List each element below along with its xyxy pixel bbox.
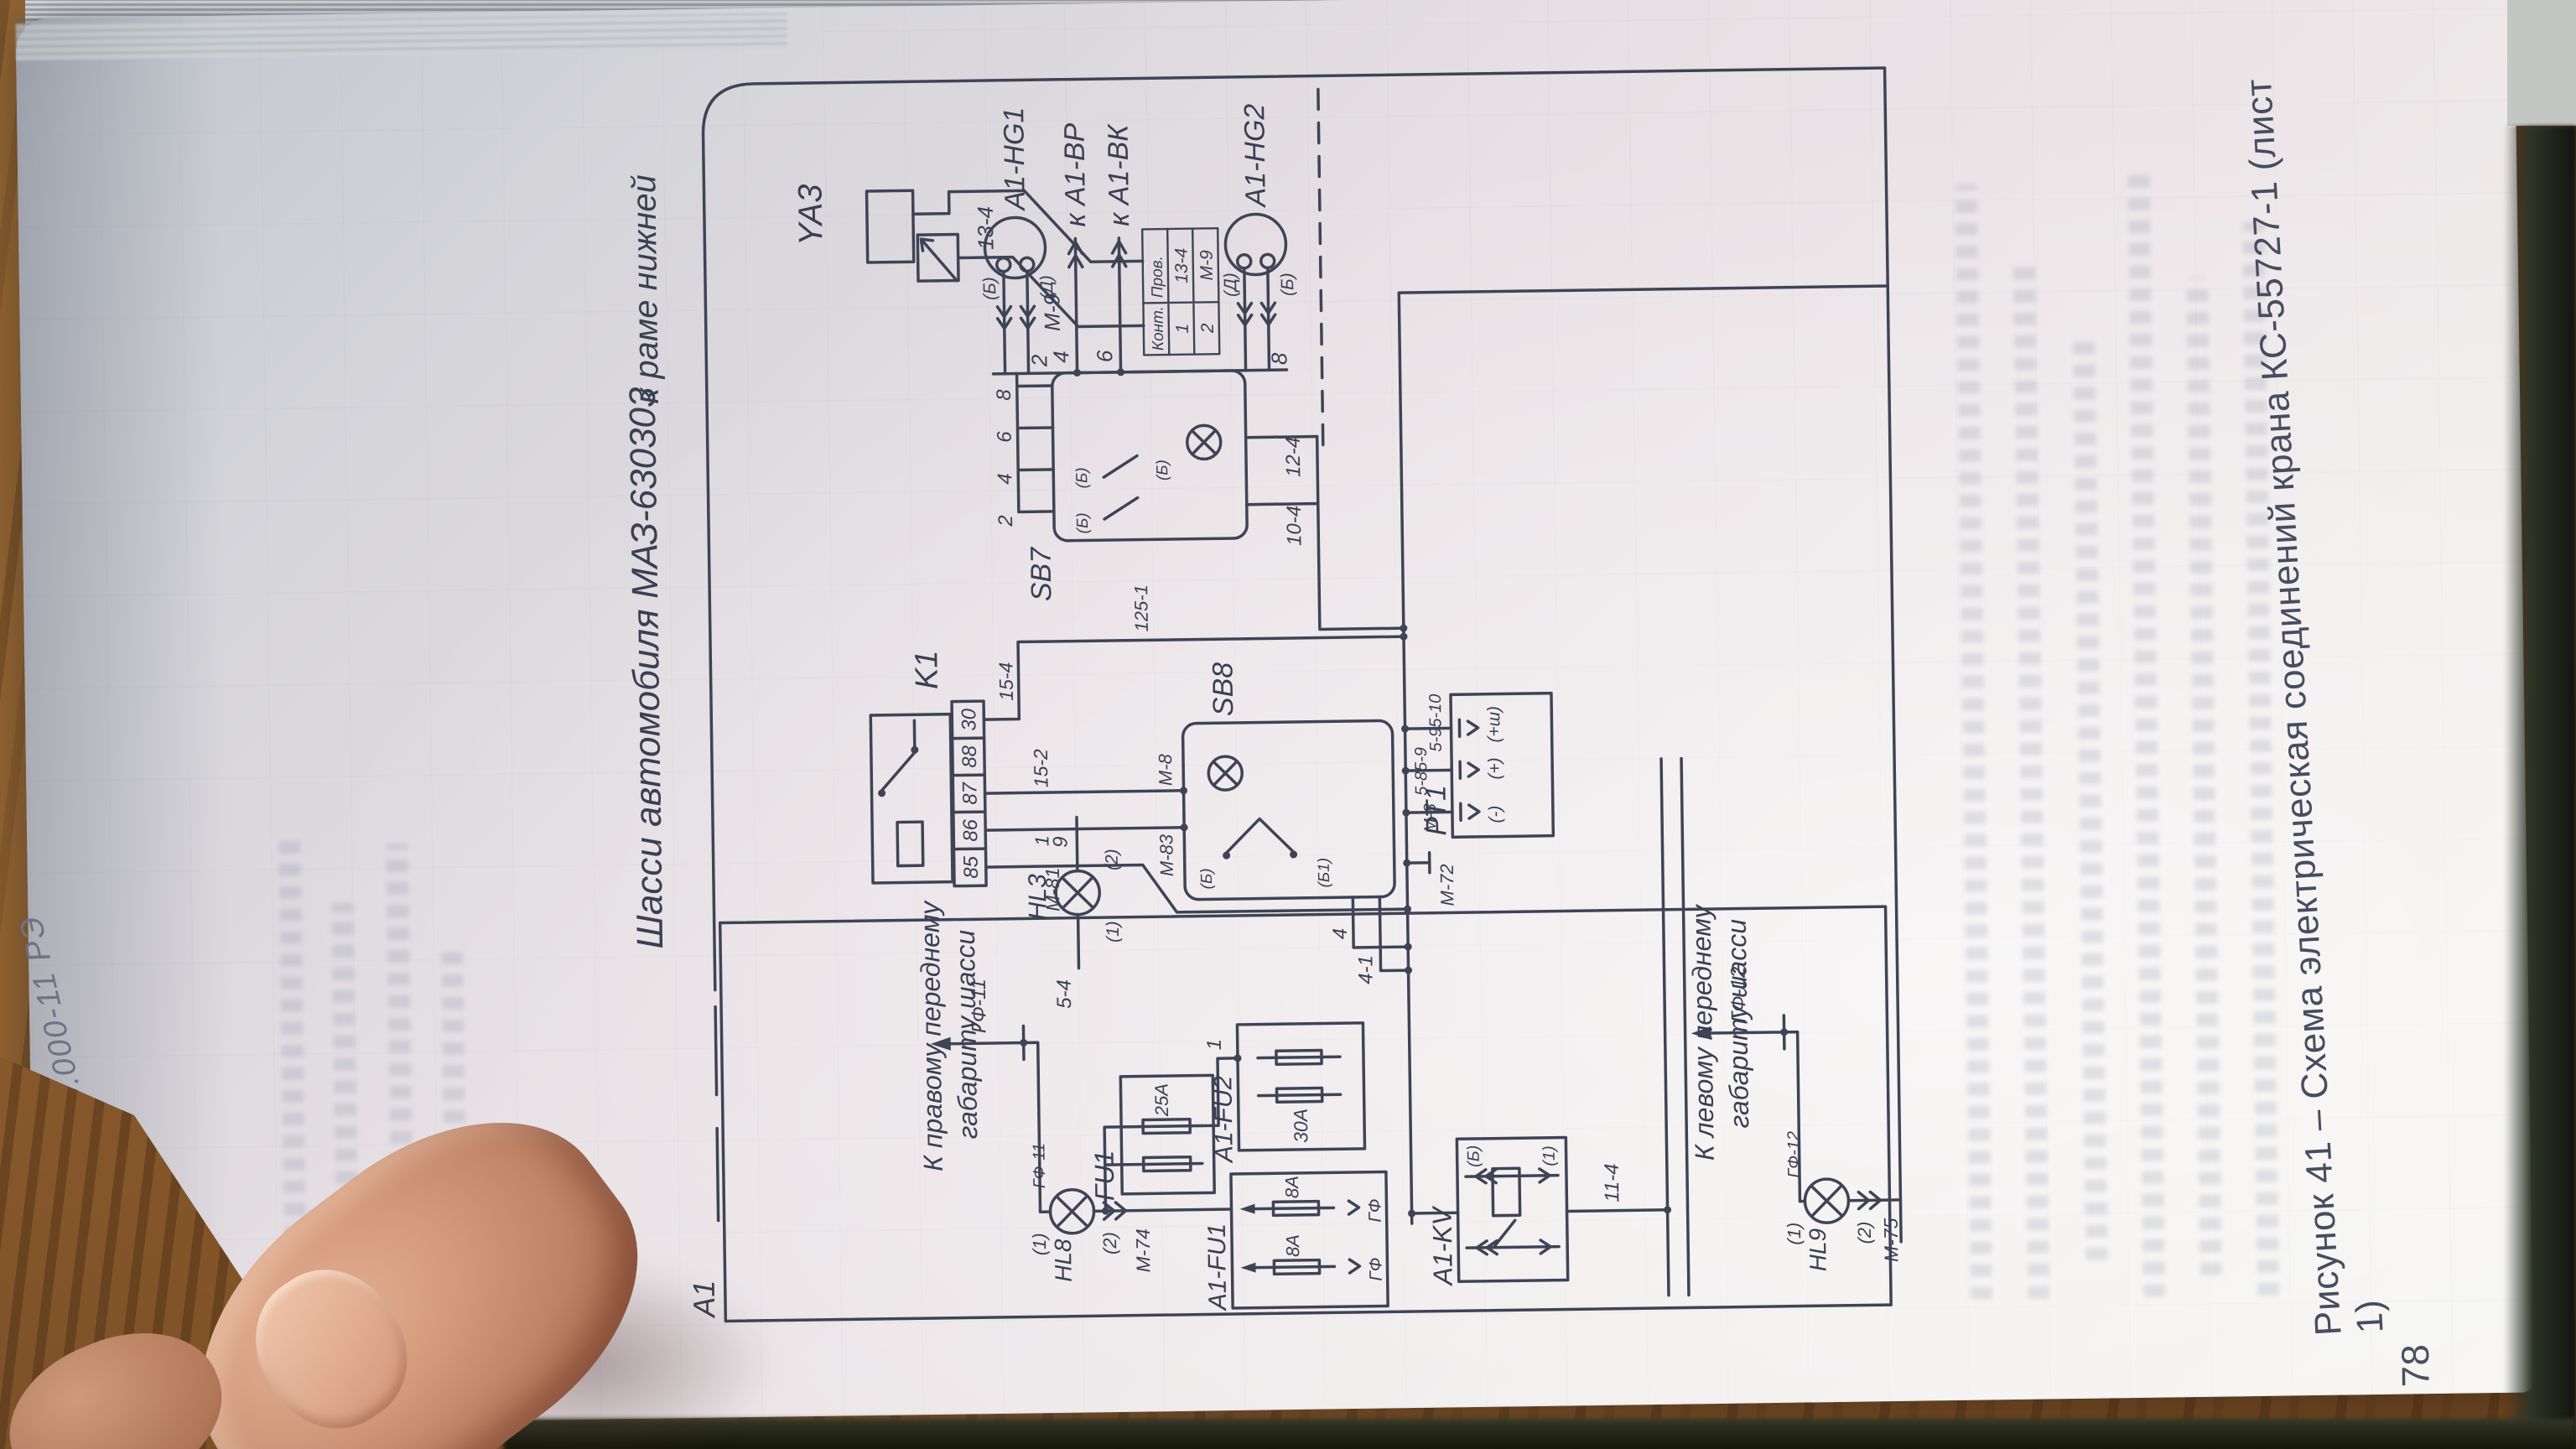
thumb-nail [229,1244,434,1449]
table-cell: 13-4 [1172,248,1192,283]
ghost-text-bleed [2127,165,2165,1297]
a1-hg2-label: А1-HG2 [1239,103,1272,208]
hg2-pin-b: (Б) [1278,273,1297,296]
hl9-lamp-cluster: К левому переднему габариту шасси ГФ-12 … [1685,901,1902,1273]
bp-wire-4: 4 [1048,351,1073,363]
hl9-wire-gf12: ГФ-12 [1784,1131,1804,1178]
hl8-label: HL8 [1050,1239,1077,1282]
hl3-terminal-1: (1) [1104,921,1123,943]
hl3-wire-5-4: 5-4 [1053,979,1076,1009]
page-number-label: 78 [2392,1344,2438,1388]
rt1-terminal-plus-sh: (+ш) [1484,706,1504,743]
hl8-note-line2: габариту шасси [950,929,983,1139]
ya3-label: YA3 [792,184,829,246]
a1-fu2-fuse-block: А1-FU2 30А 1 [1202,1023,1364,1165]
k1-terminal-87: 87 [958,781,981,805]
hl8-arrow-gf11: ГФ-11 [968,979,991,1033]
a1-fu2-wire-1: 1 [1203,1039,1226,1051]
kv-terminal-b: (Б) [1464,1145,1483,1168]
table-header-prov: Пров. [1149,256,1167,298]
a1-fu1-wire-gf: ГФ [1366,1257,1385,1280]
table-cell: 2 [1198,323,1218,334]
photo-of-manual-page: КС-55727-1.00.00.000-11 РЭ Шасси автомоб… [0,0,2576,1449]
a1-fu1-rating-8a: 8А [1281,1176,1302,1198]
k1-label: K1 [909,650,945,689]
sb7-wire-12-4: 12-4 [1282,437,1306,477]
fu1-label: FU1 [1089,1150,1120,1201]
sb8-switch: SB8 (Б) (Б1) М-8 М-83 4 4-1 [1153,660,1408,987]
k1-wire-15-4: 15-4 [995,662,1017,701]
hl8-terminal-2: (2) [1099,1232,1120,1254]
hl3-terminal-2: (2) [1102,849,1121,870]
a1-fu2-label: А1-FU2 [1209,1075,1238,1164]
sb7-wire-4: 4 [994,473,1016,485]
sb7-terminal-b: (Б) [1154,460,1171,480]
table-header-kont: Конт. [1149,306,1167,351]
hl8-terminal-1: (1) [1029,1233,1050,1255]
k1-terminal-85: 85 [960,855,983,879]
page-bottom-shadow [503,1419,2576,1449]
hl9-arrow-gf12: ГФ-12 [1727,967,1751,1023]
ghost-text-bleed [2186,278,2222,1275]
fu1-rating-25a: 25А [1150,1083,1172,1118]
a1-fu2-rating-30a: 30А [1290,1109,1312,1143]
electrical-schematic: Шасси автомобиля МАЗ-630303 к раме нижне… [553,51,1929,1344]
k1-wire-15-2: 15-2 [1030,749,1052,788]
sb7-wire-8: 8 [993,389,1015,401]
ghost-text-bleed [2073,338,2107,1260]
sb7-wire-10-4: 10-4 [1283,506,1306,546]
sb7-switch: SB7 2 4 6 8 10-4 12-4 (Б) (Б) (Б) [993,368,1404,634]
rt1-relay: РТ1 (-) (+) (+ш) М-72 М-8 5-85-9 5-95-10 [1405,693,1555,906]
bk-wire-6: 6 [1092,350,1117,362]
page-stack-edge [16,13,788,60]
a1-fu1-rating-8a: 8А [1282,1234,1303,1257]
a1-fu1-wire-gf: ГФ [1365,1198,1384,1222]
a1-hg2-lamp: А1-HG2 (Д) (Б) 8 [1218,103,1298,371]
a1-kv-label: А1-KV [1426,1205,1457,1287]
hg1-pin-b: (Б) [980,277,1000,300]
wire-125-1: 125-1 [1130,584,1152,632]
rt1-terminal-minus: (-) [1486,805,1505,823]
sb7-terminal-b: (Б) [1073,467,1091,488]
ghost-text-bleed [1955,184,1993,1300]
hl8-note-line1: К правому переднему [914,900,948,1172]
hl9-terminal-1: (1) [1784,1223,1805,1245]
sb7-terminal-b: (Б) [1074,512,1092,533]
hl9-note-line1: К левому переднему [1685,903,1719,1161]
hl9-terminal-2: (2) [1854,1221,1875,1244]
sb8-wire-m83: М-83 [1156,834,1177,876]
hl9-note-line2: габариту шасси [1722,919,1754,1129]
hg2-wire-8: 8 [1266,352,1291,365]
to-a1-bk: к А1-ВК 6 [1088,122,1137,372]
sb7-wire-2: 2 [995,515,1017,527]
rt1-wire-5-85-9: 5-85-9 [1412,747,1431,796]
table-cell: М-9 [1197,250,1218,281]
to-a1-bp: к А1-ВР 4 [1045,122,1093,373]
table-edge-light [2507,0,2576,126]
to-a1-bk-label: к А1-ВК [1102,122,1135,226]
sb8-terminal-b1: (Б1) [1316,858,1333,888]
sb7-wire-6: 6 [994,431,1016,443]
a1-fu1-fuse-block: А1-FU1 8А 8А ГФ ГФ [1202,1171,1388,1311]
rt1-wire-m8: М-8 [1421,803,1440,833]
sb8-wire-4: 4 [1329,928,1352,940]
hg2-pin-d: (Д) [1221,273,1240,297]
sb8-terminal-b: (Б) [1198,868,1216,889]
chassis-title: Шасси автомобиля МАЗ-630303 [622,387,671,949]
hl9-wire-m75: М-75 [1880,1218,1903,1262]
k1-terminal-88: 88 [958,745,981,768]
dark-background-edge [2504,126,2576,1449]
sb8-wire-4-1: 4-1 [1354,955,1377,984]
hl9-label: HL9 [1805,1228,1831,1272]
rt1-wire-m72: М-72 [1436,864,1458,906]
ya3-connector-table: Конт. Пров. 1 13-4 2 М-9 [1142,228,1219,355]
sb8-label: SB8 [1207,662,1239,717]
k1-terminal-30: 30 [958,708,980,731]
to-a1-bp-label: к А1-ВР [1058,122,1092,227]
hl8-wire-gf11: ГФ-11 [1030,1143,1049,1189]
kv-wire-11-4: 11-4 [1601,1163,1624,1202]
sb8-wire-m8: М-8 [1155,753,1176,786]
kv-terminal-1: (1) [1540,1145,1558,1166]
a1-kv-relay: А1-KV (Б) (1) 11-4 [1410,1136,1668,1287]
hl3-label: HL3 [1024,874,1052,921]
a1-hg1-label: А1-HG1 [998,106,1031,211]
rt1-terminal-plus: (+) [1485,757,1504,780]
hl8-lamp-cluster: К правому переднему габариту шасси ГФ-11… [914,896,1232,1284]
sb7-label: SB7 [1025,547,1057,602]
table-cell: 1 [1173,324,1192,334]
a1-fu1-label: А1-FU1 [1203,1223,1232,1312]
k1-terminal-86: 86 [959,818,982,842]
frame-note: к раме нижней [626,174,666,404]
ghost-text-bleed [2013,259,2049,1299]
rt1-wire-5-95-10: 5-95-10 [1426,694,1446,752]
hl3-wire-9: 9 [1049,836,1072,848]
hg1-pin-d: (Д) [1037,275,1057,299]
hl8-wire-m74: М-74 [1132,1228,1155,1273]
